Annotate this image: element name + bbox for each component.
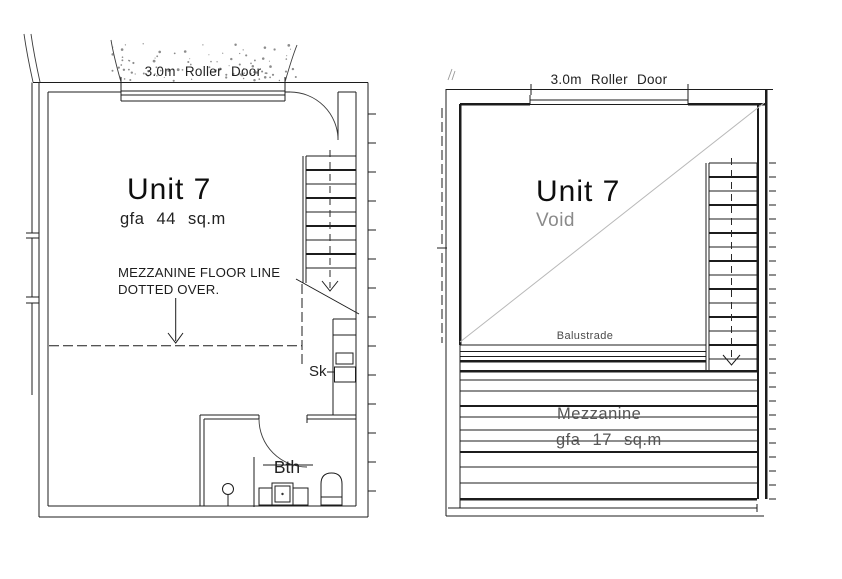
mz-corner-marks: [448, 69, 455, 80]
ground-floor-plan: 3.0m Roller Door Unit 7 gfa 44 sq.m MEZZ…: [24, 34, 376, 517]
gf-mezzanine-note-line1: MEZZANINE FLOOR LINE: [118, 265, 280, 280]
mz-void-diagonal: [460, 103, 764, 342]
mz-staircase: [706, 158, 757, 371]
toilet: [321, 473, 342, 505]
gf-note-arrow: [168, 298, 183, 343]
mz-gfa-label: gfa 17 sq.m: [556, 431, 662, 449]
mz-roller-door-label: 3.0m Roller Door: [551, 72, 668, 87]
gf-roller-door: [121, 77, 285, 101]
mezzanine-plan: 3.0m Roller Door Unit 7 Void Balustrade …: [437, 69, 776, 516]
gf-unit-title: Unit 7: [127, 173, 211, 206]
gf-stair-break-line: [296, 279, 359, 314]
gf-bath-label: Bth: [274, 457, 300, 477]
basin: [223, 484, 234, 507]
floor-plan-canvas: 3.0m Roller Door Unit 7 gfa 44 sq.m MEZZ…: [0, 0, 842, 579]
gf-mezzanine-note-line2: DOTTED OVER.: [118, 282, 219, 297]
unit7-floor-plan-drawing: 3.0m Roller Door Unit 7 gfa 44 sq.m MEZZ…: [0, 0, 842, 579]
mz-void-label: Void: [536, 210, 575, 231]
shower-tray: [259, 483, 308, 505]
gf-gfa-label: gfa 44 sq.m: [120, 210, 226, 228]
gf-entry-door-swing: [290, 92, 338, 140]
mz-unit-title: Unit 7: [536, 175, 620, 208]
mz-roller-door: [530, 95, 688, 105]
mz-balustrade-lines: [460, 345, 706, 361]
mz-right-wall-ticks: [769, 163, 776, 499]
gf-exterior-walls: [26, 83, 376, 518]
gf-right-wall-ticks: [368, 114, 376, 491]
gf-staircase: [296, 150, 359, 314]
mz-balustrade-label: Balustrade: [557, 330, 614, 342]
gf-sink-label: Sk: [309, 363, 327, 380]
mz-mezzanine-label: Mezzanine: [557, 405, 641, 423]
gf-sink-unit: [327, 319, 356, 415]
gf-roller-door-label: 3.0m Roller Door: [145, 64, 262, 79]
